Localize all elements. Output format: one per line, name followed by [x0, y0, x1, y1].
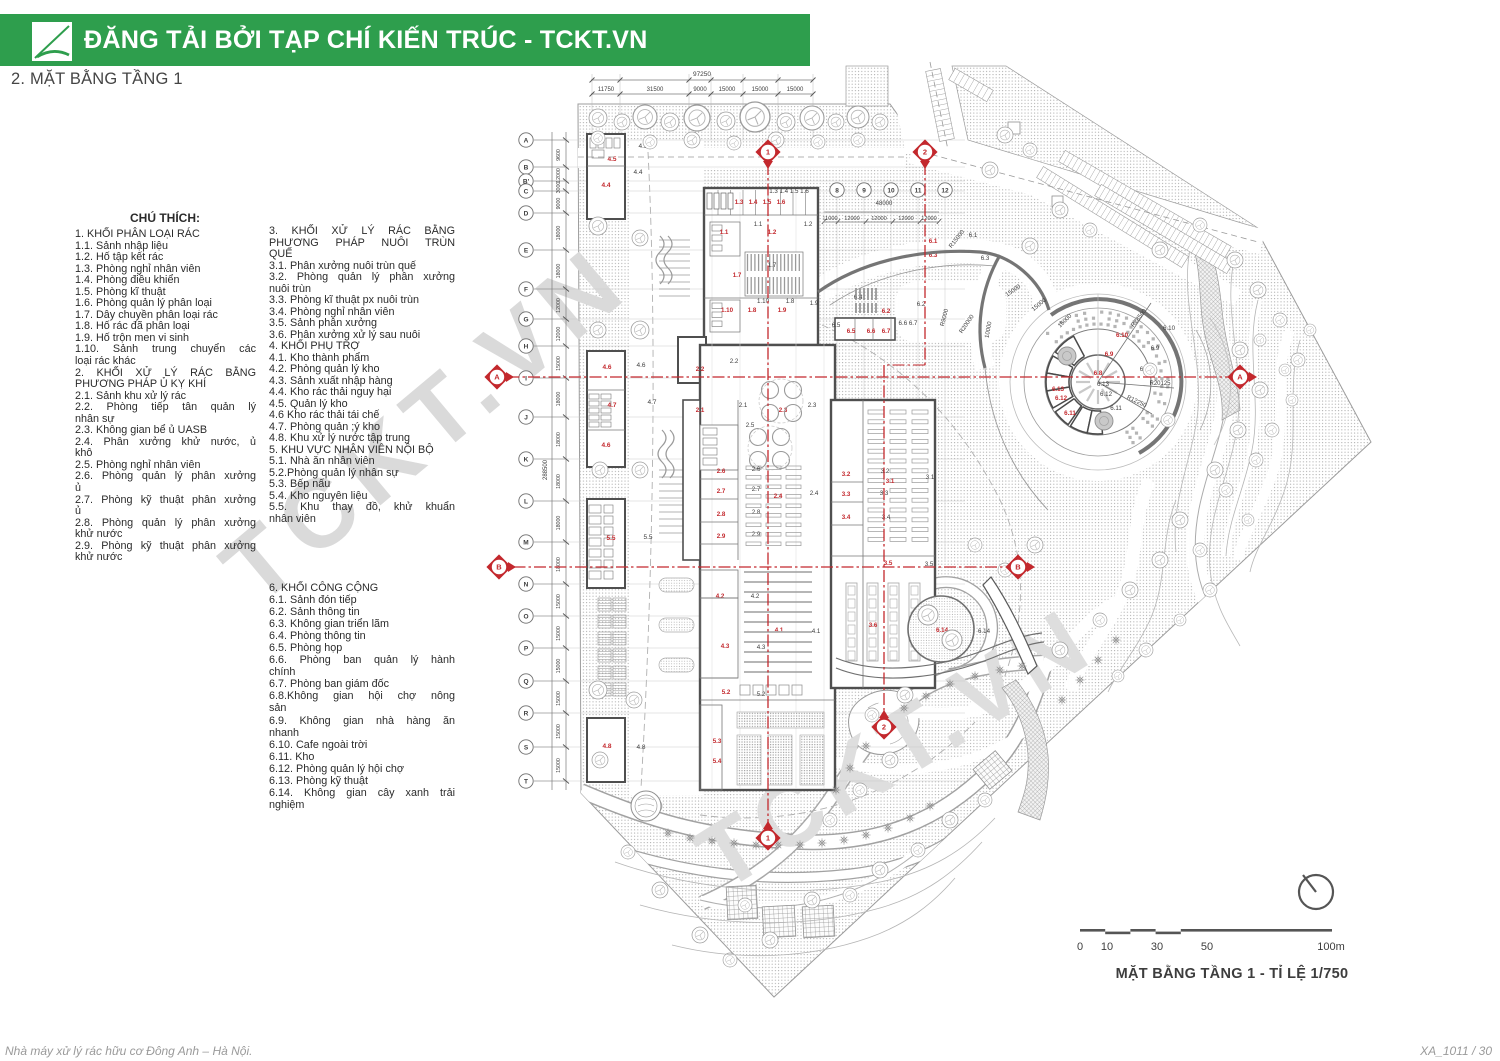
svg-text:6.1: 6.1	[969, 232, 978, 239]
svg-text:18000: 18000	[556, 264, 562, 279]
svg-text:2.5: 2.5	[746, 422, 755, 429]
svg-text:15000: 15000	[556, 758, 562, 773]
svg-text:2.2: 2.2	[730, 358, 739, 365]
svg-text:6.10: 6.10	[1116, 332, 1129, 339]
svg-text:9000: 9000	[693, 87, 707, 93]
svg-text:A: A	[494, 373, 500, 382]
svg-text:18000: 18000	[556, 557, 562, 572]
svg-text:T: T	[524, 778, 528, 785]
svg-text:4.7: 4.7	[647, 399, 656, 406]
svg-text:2.8: 2.8	[752, 509, 761, 516]
svg-text:2.3: 2.3	[808, 402, 817, 409]
svg-text:B: B	[1015, 563, 1021, 572]
svg-text:6.2: 6.2	[882, 308, 891, 315]
svg-text:MẶT BẰNG TẦNG 1 - TỈ LỆ 1/750: MẶT BẰNG TẦNG 1 - TỈ LỆ 1/750	[1116, 964, 1349, 982]
svg-text:B: B	[524, 164, 529, 171]
svg-text:1.6: 1.6	[777, 199, 786, 206]
svg-text:8: 8	[835, 187, 839, 194]
svg-text:6.12: 6.12	[1055, 395, 1068, 402]
svg-text:15000: 15000	[556, 594, 562, 609]
svg-text:4.6: 4.6	[602, 364, 611, 371]
svg-text:1.2: 1.2	[768, 229, 777, 236]
svg-text:2.7: 2.7	[717, 488, 726, 495]
svg-text:31500: 31500	[647, 87, 664, 93]
svg-text:4.2: 4.2	[716, 593, 725, 600]
svg-text:10: 10	[1101, 941, 1113, 953]
svg-text:3.1: 3.1	[926, 474, 935, 481]
svg-text:9600: 9600	[556, 149, 562, 161]
svg-text:K: K	[524, 456, 529, 463]
svg-text:1.10: 1.10	[721, 307, 734, 314]
svg-text:6.8: 6.8	[1094, 370, 1103, 377]
svg-text:12000: 12000	[871, 216, 887, 222]
svg-text:1.3 1.4 1.5 1.6: 1.3 1.4 1.5 1.6	[769, 188, 809, 195]
svg-text:2: 2	[882, 723, 886, 732]
svg-text:6.9: 6.9	[1151, 345, 1160, 352]
svg-text:18000: 18000	[556, 516, 562, 531]
svg-text:12000: 12000	[844, 216, 860, 222]
svg-text:1.4: 1.4	[749, 199, 758, 206]
svg-text:4.3: 4.3	[721, 643, 730, 650]
svg-text:3.5: 3.5	[884, 560, 893, 567]
svg-text:2.9: 2.9	[717, 533, 726, 540]
svg-text:9000: 9000	[556, 198, 562, 210]
svg-text:3.2: 3.2	[881, 468, 890, 475]
svg-text:G: G	[523, 316, 528, 323]
svg-text:5.5: 5.5	[643, 534, 652, 541]
svg-text:E: E	[524, 247, 529, 254]
svg-text:18000: 18000	[556, 432, 562, 447]
svg-text:1.5: 1.5	[763, 199, 772, 206]
svg-text:3.2: 3.2	[842, 471, 851, 478]
svg-text:12000: 12000	[921, 216, 937, 222]
svg-text:15000: 15000	[719, 87, 736, 93]
svg-text:15000: 15000	[556, 356, 562, 371]
svg-text:12: 12	[941, 187, 949, 194]
svg-text:J: J	[524, 414, 528, 421]
svg-text:4.2: 4.2	[751, 593, 760, 600]
svg-text:4.6: 4.6	[636, 362, 645, 369]
svg-text:O: O	[523, 613, 528, 620]
svg-text:15000: 15000	[556, 659, 562, 674]
svg-text:1.3: 1.3	[735, 199, 744, 206]
svg-text:1.9: 1.9	[810, 300, 819, 307]
svg-text:4.8: 4.8	[602, 743, 611, 750]
svg-text:1.8: 1.8	[786, 298, 795, 305]
svg-text:L: L	[524, 498, 528, 505]
svg-text:1.1: 1.1	[754, 221, 763, 228]
svg-text:3.6: 3.6	[869, 622, 878, 629]
svg-text:2.6: 2.6	[717, 468, 726, 475]
svg-text:6.11: 6.11	[1110, 405, 1122, 412]
svg-text:15000: 15000	[752, 87, 769, 93]
svg-text:R: R	[524, 710, 529, 717]
svg-text:18000: 18000	[556, 474, 562, 489]
svg-text:6.14: 6.14	[978, 628, 991, 635]
svg-text:4.7: 4.7	[607, 402, 616, 409]
svg-text:6.12: 6.12	[1100, 391, 1113, 398]
svg-text:1: 1	[766, 834, 770, 843]
svg-text:R20125: R20125	[1149, 381, 1171, 387]
svg-text:6.4: 6.4	[854, 294, 863, 301]
svg-text:1: 1	[766, 148, 770, 157]
svg-text:4.1: 4.1	[775, 627, 784, 634]
svg-text:4.1: 4.1	[812, 628, 821, 635]
svg-text:A: A	[1237, 373, 1243, 382]
svg-text:2.4: 2.4	[774, 493, 783, 500]
svg-text:M: M	[523, 539, 528, 546]
svg-text:1.7: 1.7	[768, 262, 777, 269]
svg-text:11750: 11750	[598, 87, 615, 93]
svg-text:1.2: 1.2	[804, 221, 813, 228]
svg-text:I: I	[525, 375, 527, 382]
svg-text:2.7: 2.7	[752, 486, 761, 493]
svg-text:97250: 97250	[693, 71, 711, 78]
svg-text:15000: 15000	[556, 724, 562, 739]
svg-text:3.3: 3.3	[842, 491, 851, 498]
svg-text:3.4: 3.4	[882, 514, 891, 521]
svg-text:6.5: 6.5	[847, 328, 856, 335]
svg-text:6.10: 6.10	[1163, 325, 1176, 332]
svg-text:1.8: 1.8	[748, 307, 757, 314]
svg-text:15000: 15000	[556, 691, 562, 706]
svg-text:A: A	[524, 137, 529, 144]
svg-text:P: P	[524, 645, 529, 652]
svg-text:0: 0	[1077, 941, 1083, 953]
svg-text:5.5: 5.5	[606, 535, 615, 542]
svg-text:3.4: 3.4	[842, 514, 851, 521]
svg-text:15000: 15000	[787, 87, 804, 93]
svg-text:2.1: 2.1	[696, 407, 705, 414]
svg-text:5.2: 5.2	[722, 689, 731, 696]
svg-text:1.1: 1.1	[720, 229, 729, 236]
svg-text:1.7: 1.7	[733, 272, 742, 279]
svg-text:2.9: 2.9	[752, 531, 761, 538]
svg-text:4.8: 4.8	[636, 744, 645, 751]
svg-text:2.2: 2.2	[696, 366, 705, 373]
svg-text:11: 11	[915, 187, 922, 194]
svg-text:Q: Q	[523, 678, 528, 685]
svg-text:3.1: 3.1	[886, 478, 895, 485]
svg-text:12000: 12000	[556, 298, 562, 313]
svg-text:6.11: 6.11	[1064, 410, 1076, 417]
svg-text:H: H	[524, 343, 529, 350]
svg-text:12000: 12000	[556, 327, 562, 342]
svg-text:3000: 3000	[556, 182, 562, 194]
svg-text:12000: 12000	[556, 168, 562, 183]
svg-text:D: D	[524, 210, 529, 217]
svg-text:6.6 6.7: 6.6 6.7	[899, 320, 918, 327]
svg-text:2.4: 2.4	[810, 490, 819, 497]
svg-text:9: 9	[862, 187, 866, 194]
svg-text:18000: 18000	[556, 226, 562, 241]
svg-text:6.9: 6.9	[1105, 351, 1114, 358]
svg-text:N: N	[524, 581, 529, 588]
svg-text:6.1: 6.1	[929, 238, 938, 245]
svg-text:11000: 11000	[822, 216, 837, 222]
svg-text:4.3: 4.3	[757, 644, 766, 651]
svg-text:2: 2	[923, 148, 927, 157]
svg-text:F: F	[524, 286, 528, 293]
svg-text:50: 50	[1201, 941, 1213, 953]
svg-text:48000: 48000	[876, 201, 893, 207]
svg-text:6.7: 6.7	[882, 328, 891, 335]
svg-text:30: 30	[1151, 941, 1163, 953]
svg-text:4.4: 4.4	[601, 182, 610, 189]
svg-text:288500: 288500	[543, 459, 549, 480]
svg-text:B: B	[496, 563, 502, 572]
svg-text:6.13: 6.13	[1097, 381, 1110, 388]
svg-text:18000: 18000	[556, 392, 562, 407]
svg-text:12000: 12000	[898, 216, 914, 222]
svg-text:6.13: 6.13	[1052, 386, 1065, 393]
svg-text:5.2: 5.2	[757, 691, 766, 698]
svg-text:6.5: 6.5	[832, 322, 841, 329]
svg-text:2.1: 2.1	[739, 402, 748, 409]
svg-text:15000: 15000	[556, 626, 562, 641]
svg-text:2.8: 2.8	[717, 511, 726, 518]
svg-text:5.3: 5.3	[713, 738, 722, 745]
svg-text:6.3: 6.3	[981, 255, 990, 262]
svg-text:1.9: 1.9	[778, 307, 787, 314]
svg-text:4.4: 4.4	[633, 169, 642, 176]
svg-text:4.6: 4.6	[601, 442, 610, 449]
svg-text:C: C	[524, 188, 529, 195]
svg-text:6.6: 6.6	[867, 328, 876, 335]
svg-text:5.4: 5.4	[713, 758, 722, 765]
svg-text:100m: 100m	[1317, 941, 1345, 953]
svg-text:10: 10	[887, 187, 895, 194]
svg-text:S: S	[524, 744, 529, 751]
